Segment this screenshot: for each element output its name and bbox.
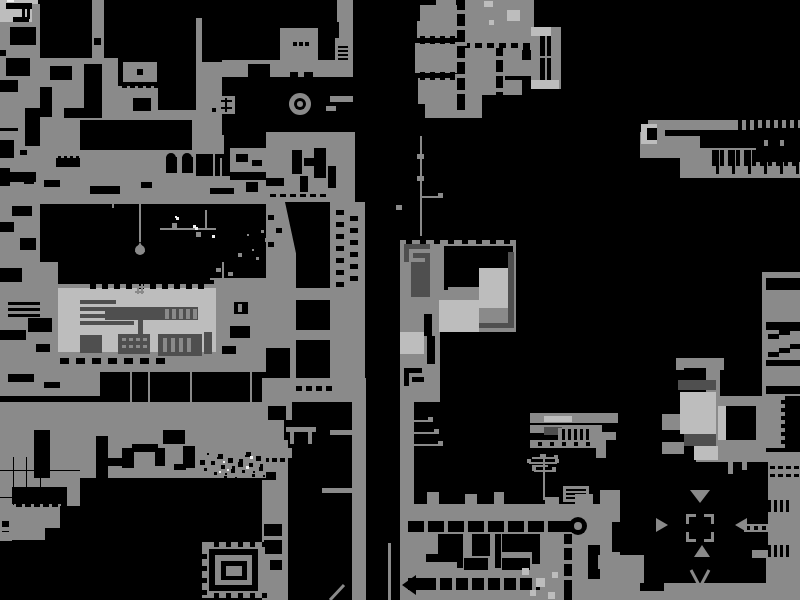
game-map-viewport [0, 0, 800, 600]
game-world-map-canvas[interactable] [0, 0, 800, 600]
